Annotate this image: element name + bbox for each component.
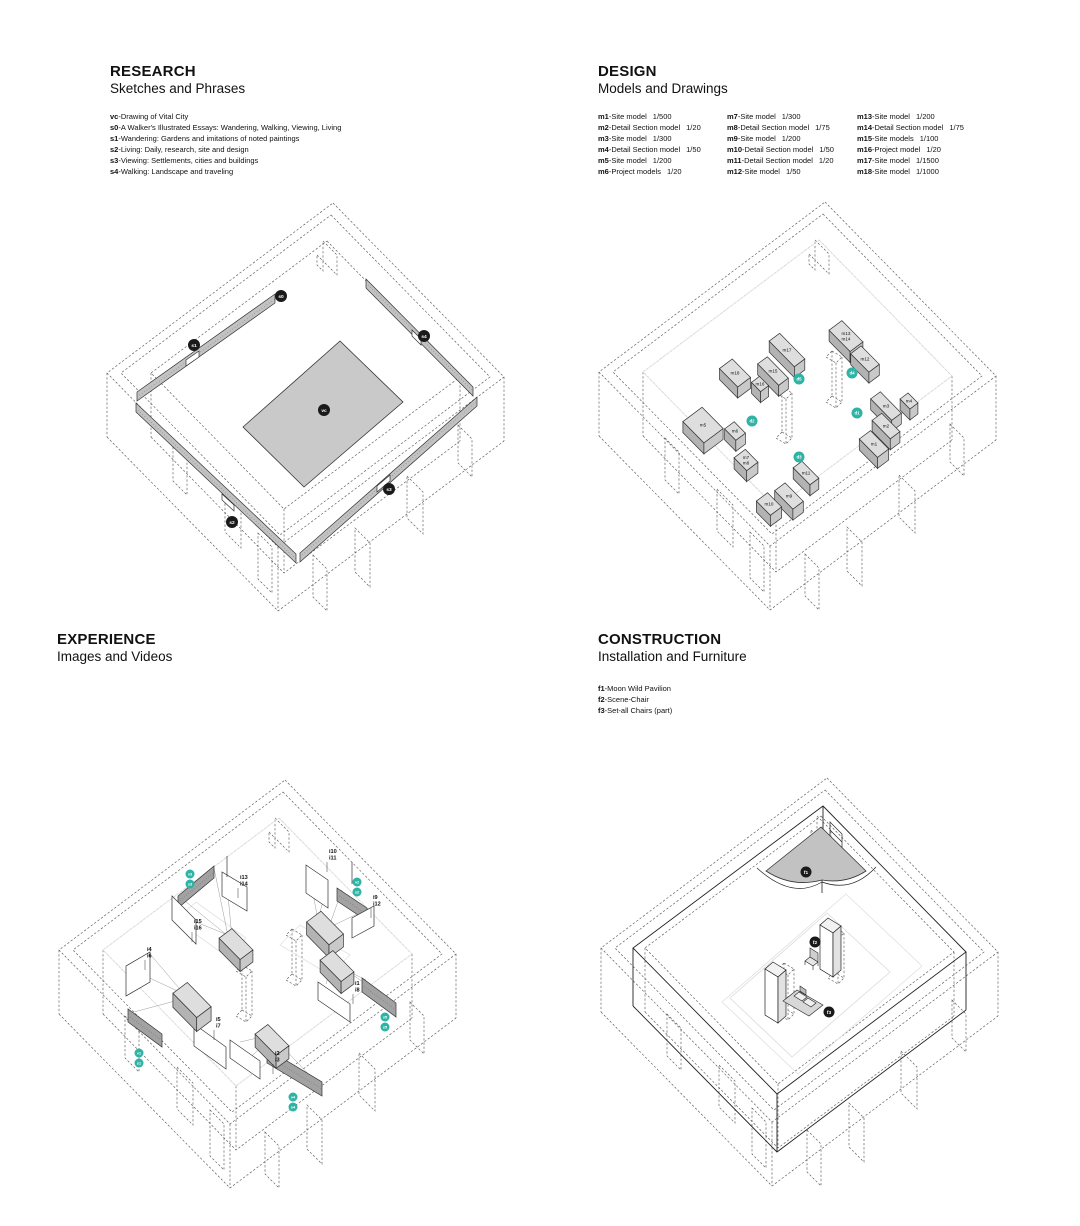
section-title: DESIGN xyxy=(598,63,728,80)
model-label-m10: m10 xyxy=(765,502,774,507)
legend-item: m15-Site models1/100 xyxy=(857,133,985,144)
scene-chair xyxy=(805,948,818,970)
legend-item: m6-Project models1/20 xyxy=(598,166,726,177)
image-label-i5: i5 xyxy=(216,1017,221,1023)
badge-s1: s1 xyxy=(191,343,197,349)
video-badge-v5-label: v5 xyxy=(383,1015,387,1019)
legend-item: m14-Detail Section model1/75 xyxy=(857,122,985,133)
legend-item: m10-Detail Section model1/50 xyxy=(727,144,855,155)
badge-s4: s4 xyxy=(421,334,427,340)
legend-item: s2-Living: Daily, research, site and des… xyxy=(110,144,440,155)
image-label-i9: i9 xyxy=(373,895,378,901)
image-label-i16: i16 xyxy=(194,925,202,931)
construction-drawing: f1 f2 f3 xyxy=(601,778,998,1186)
model-label-m8: m8 xyxy=(743,460,750,465)
legend-item: s3-Viewing: Settlements, cities and buil… xyxy=(110,155,440,166)
research-legend: vc-Drawing of Vital City s0-A Walker's I… xyxy=(110,111,440,177)
legend-item: m3-Site model1/300 xyxy=(598,133,726,144)
research-drawing: s0 s4 s1 s3 s2 vc xyxy=(107,203,504,611)
floor-ghost xyxy=(722,894,922,1074)
research-header: RESEARCH Sketches and Phrases xyxy=(110,63,245,96)
image-label-i7: i7 xyxy=(216,1023,221,1029)
model-label-m7: m7 xyxy=(743,455,750,460)
construction-header: CONSTRUCTION Installation and Furniture xyxy=(598,631,747,664)
image-label-i3: i3 xyxy=(275,1057,280,1063)
area-badge-d3-label: d3 xyxy=(796,454,802,459)
legend-item: m1-Site model1/500 xyxy=(598,111,726,122)
section-title: CONSTRUCTION xyxy=(598,631,747,648)
legend-item: f1-Moon Wild Pavilion xyxy=(598,683,818,694)
legend-item: m13-Site model1/200 xyxy=(857,111,985,122)
image-label-i2: i2 xyxy=(275,1051,280,1057)
sound-badge-s5-label: s5 xyxy=(383,1025,387,1029)
image-label-i1: i1 xyxy=(355,981,360,987)
design-legend-col3: m13-Site model1/200 m14-Detail Section m… xyxy=(857,111,985,177)
model-label-m5: m5 xyxy=(700,423,707,428)
legend-item: m4-Detail Section model1/50 xyxy=(598,144,726,155)
image-label-i11: i11 xyxy=(329,855,336,861)
legend-item: m16-Project model1/20 xyxy=(857,144,985,155)
projection-beam xyxy=(150,954,184,994)
badge-s3: s3 xyxy=(386,487,392,493)
model-label-m12: m12 xyxy=(861,357,870,362)
section-subtitle: Images and Videos xyxy=(57,649,172,664)
area-badge-d2-label: d2 xyxy=(749,418,755,423)
legend-item: s0-A Walker's Illustrated Essays: Wander… xyxy=(110,122,440,133)
legend-item: m7-Site model1/300 xyxy=(727,111,855,122)
area-badge-d5-label: d5 xyxy=(796,376,802,381)
image-label-i14: i14 xyxy=(240,881,249,887)
model-label-m9: m9 xyxy=(786,494,793,499)
legend-item: f3-Set-all Chairs (part) xyxy=(598,705,818,716)
badge-f2: f2 xyxy=(813,940,818,946)
model-label-m18: m18 xyxy=(731,371,740,376)
image-label-i12: i12 xyxy=(373,901,381,907)
model-label-m6: m6 xyxy=(732,429,739,434)
model-label-m3: m3 xyxy=(883,404,890,409)
sound-badge-s2-label: s2 xyxy=(355,890,359,894)
legend-item: vc-Drawing of Vital City xyxy=(110,111,440,122)
model-label-m2: m2 xyxy=(883,424,890,429)
legend-item: f2-Scene-Chair xyxy=(598,694,818,705)
legend-item: m11-Detail Section model1/20 xyxy=(727,155,855,166)
construction-legend: f1-Moon Wild Pavilion f2-Scene-Chair f3-… xyxy=(598,683,818,716)
model-label-m1: m1 xyxy=(871,442,878,447)
legend-item: m18-Site model1/1000 xyxy=(857,166,985,177)
design-header: DESIGN Models and Drawings xyxy=(598,63,728,96)
model-label-m11: m11 xyxy=(802,471,811,476)
legend-item: s4-Walking: Landscape and traveling xyxy=(110,166,440,177)
model-tables: m17m15m16m18m13m14m12m3m4m2m1m5m6m7m8m11… xyxy=(683,321,918,527)
image-label-i4: i4 xyxy=(147,947,153,953)
video-badge-v3-label: v3 xyxy=(188,872,192,876)
image-label-i8: i8 xyxy=(355,987,360,993)
floor-ghost xyxy=(730,913,890,1057)
moon-wild-pavilion xyxy=(757,827,876,893)
legend-item: m9-Site model1/200 xyxy=(727,133,855,144)
experience-drawing: i13i14i15i16i10i11i9i12i4i6i5i7i1i8i2i3v… xyxy=(59,780,456,1188)
model-label-m17: m17 xyxy=(783,348,792,353)
section-subtitle: Sketches and Phrases xyxy=(110,81,245,96)
legend-item: m8-Detail Section model1/75 xyxy=(727,122,855,133)
legend-item: s1-Wandering: Gardens and imitations of … xyxy=(110,133,440,144)
area-badge-d4-label: d4 xyxy=(849,370,855,375)
legend-item: m5-Site model1/200 xyxy=(598,155,726,166)
badge-f3: f3 xyxy=(827,1010,832,1016)
image-label-i10: i10 xyxy=(329,849,337,855)
screen-panel xyxy=(194,1024,226,1069)
image-label-i13: i13 xyxy=(240,875,248,881)
model-label-m15: m15 xyxy=(769,369,778,374)
set-all-chairs xyxy=(783,986,823,1016)
video-badge-v2-label: v2 xyxy=(355,880,359,884)
model-label-m14: m14 xyxy=(842,336,851,341)
model-label-m16: m16 xyxy=(756,382,765,387)
model-label-m4: m4 xyxy=(906,399,913,404)
axonometric-drawings: s0 s4 s1 s3 s2 vc m17m15m16m18m13m14m12m… xyxy=(0,0,1080,1226)
badge-s2: s2 xyxy=(229,520,235,526)
projection-setups: i13i14i15i16i10i11i9i12i4i6i5i7i1i8i2i3v… xyxy=(126,849,396,1112)
video-badge-v1-label: v1 xyxy=(137,1051,141,1055)
screen-panel xyxy=(306,865,328,908)
image-label-i6: i6 xyxy=(147,953,152,959)
badge-s0: s0 xyxy=(278,294,284,300)
badge-vc: vc xyxy=(321,409,327,414)
section-subtitle: Installation and Furniture xyxy=(598,649,747,664)
section-title: EXPERIENCE xyxy=(57,631,172,648)
model-label-m13: m13 xyxy=(842,331,851,336)
section-subtitle: Models and Drawings xyxy=(598,81,728,96)
legend-item: m12-Site model1/50 xyxy=(727,166,855,177)
image-label-i15: i15 xyxy=(194,919,202,925)
badge-f1: f1 xyxy=(804,870,809,876)
sound-badge-s3-label: s3 xyxy=(188,882,192,886)
area-badge-d1-label: d1 xyxy=(854,410,860,415)
sound-badge-s1-label: s1 xyxy=(137,1061,141,1065)
legend-item: m2-Detail Section model1/20 xyxy=(598,122,726,133)
design-legend-col1: m1-Site model1/500 m2-Detail Section mod… xyxy=(598,111,726,177)
design-drawing: m17m15m16m18m13m14m12m3m4m2m1m5m6m7m8m11… xyxy=(599,202,996,610)
section-title: RESEARCH xyxy=(110,63,245,80)
experience-header: EXPERIENCE Images and Videos xyxy=(57,631,172,664)
legend-item: m17-Site model1/1500 xyxy=(857,155,985,166)
design-legend-col2: m7-Site model1/300 m8-Detail Section mod… xyxy=(727,111,855,177)
